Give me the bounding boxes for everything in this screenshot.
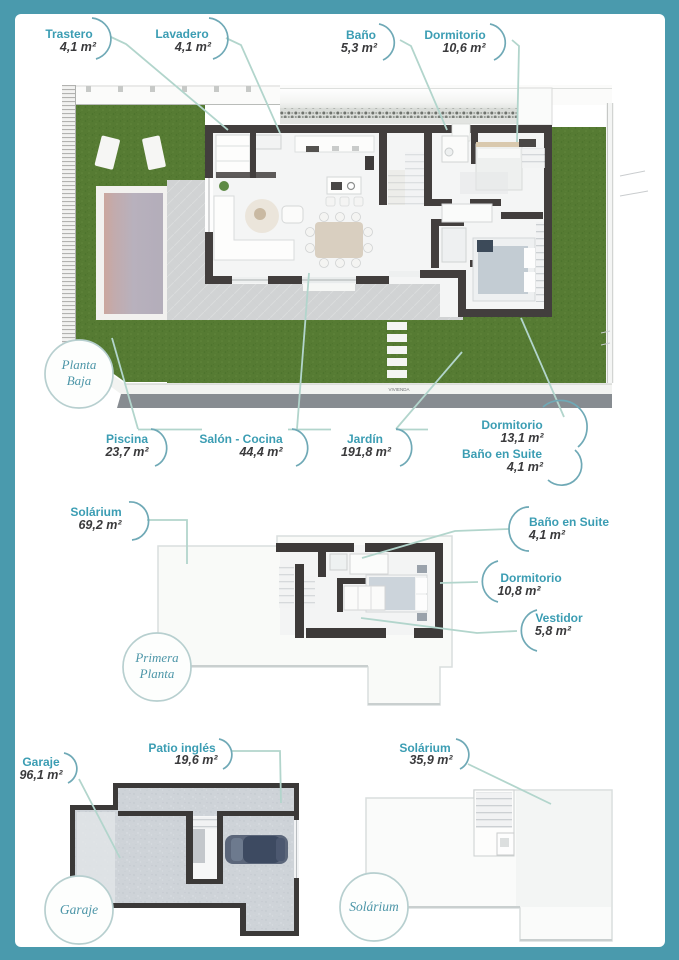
svg-text:Vestidor: Vestidor [535,611,583,625]
svg-text:Garaje: Garaje [60,902,98,917]
svg-text:Dormitorio: Dormitorio [500,571,561,585]
svg-text:4,1 m²: 4,1 m² [174,40,212,54]
svg-text:4,1 m²: 4,1 m² [59,40,97,54]
svg-text:Baño en Suite: Baño en Suite [462,447,542,461]
svg-text:Primera: Primera [134,650,179,665]
svg-text:Jardín: Jardín [347,432,383,446]
svg-text:Piscina: Piscina [106,432,148,446]
svg-text:Baño: Baño [346,28,376,42]
svg-text:Lavadero: Lavadero [155,27,208,41]
svg-text:69,2 m²: 69,2 m² [78,518,122,532]
svg-text:VIVIENDA: VIVIENDA [388,387,409,392]
svg-text:Dormitorio: Dormitorio [424,28,485,42]
svg-text:4,1 m²: 4,1 m² [506,460,544,474]
svg-text:19,6 m²: 19,6 m² [174,753,218,767]
svg-text:Trastero: Trastero [45,27,92,41]
svg-text:35,9 m²: 35,9 m² [409,753,453,767]
svg-text:Garaje: Garaje [22,755,60,769]
svg-text:10,6 m²: 10,6 m² [442,41,486,55]
svg-text:5,8 m²: 5,8 m² [535,624,572,638]
svg-text:Dormitorio: Dormitorio [481,418,542,432]
svg-text:4,1 m²: 4,1 m² [528,528,566,542]
svg-text:10,8 m²: 10,8 m² [497,584,541,598]
svg-text:Salón - Cocina: Salón - Cocina [199,432,283,446]
svg-text:23,7 m²: 23,7 m² [104,445,149,459]
svg-text:13,1 m²: 13,1 m² [500,431,544,445]
svg-text:Baja: Baja [67,373,92,388]
svg-text:Planta: Planta [139,666,175,681]
svg-text:Solárium: Solárium [349,899,399,914]
svg-text:5,3 m²: 5,3 m² [341,41,378,55]
svg-text:Planta: Planta [61,357,97,372]
svg-text:Baño en Suite: Baño en Suite [529,515,609,529]
svg-text:44,4 m²: 44,4 m² [238,445,283,459]
svg-text:96,1 m²: 96,1 m² [19,768,63,782]
svg-text:Solárium: Solárium [70,505,121,519]
svg-text:191,8 m²: 191,8 m² [341,445,392,459]
